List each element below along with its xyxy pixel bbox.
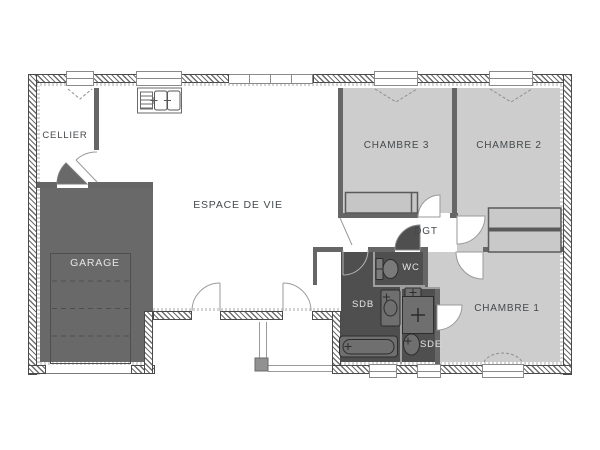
- floor-plan: CELLIER GARAGE ESPACE DE VIE CHAMBRE 3 C…: [0, 0, 600, 450]
- entry-door-left-icon: [192, 283, 220, 311]
- window-cellier: [66, 71, 94, 86]
- closet-chambre3-icon: [346, 193, 418, 214]
- room-label-sdb: SDB: [347, 299, 379, 310]
- porch-post: [255, 358, 268, 371]
- room-label-cellier: CELLIER: [30, 130, 100, 141]
- room-label-wc: WC: [398, 262, 424, 273]
- closet-chambre2-icon: [489, 208, 562, 252]
- entry-door-right-icon: [283, 283, 311, 311]
- kitchen-sink-icon: [138, 88, 182, 113]
- chambre3-door-icon: [418, 195, 440, 217]
- room-label-chambre2: CHAMBRE 2: [456, 140, 562, 151]
- living-dgt-door-leaf: [340, 218, 352, 245]
- room-label-espace-de-vie: ESPACE DE VIE: [158, 199, 318, 211]
- window-sde: [417, 364, 441, 378]
- plan-details: [0, 0, 600, 450]
- room-label-garage: GARAGE: [45, 257, 145, 269]
- window-chambre3: [374, 71, 418, 86]
- sdb-door-icon: [343, 250, 368, 275]
- toilet-icon: [376, 259, 399, 280]
- vanity-sink-icon: [381, 290, 400, 326]
- bay-window-living: [229, 74, 313, 84]
- room-label-chambre1: CHAMBRE 1: [447, 303, 567, 314]
- room-label-sde: SDE: [415, 339, 447, 350]
- window-chambre1: [482, 364, 524, 378]
- chambre1-door-icon: [456, 252, 483, 279]
- window-chambre2: [489, 71, 533, 86]
- shower-icon: [403, 297, 434, 334]
- window-kitchen: [136, 71, 182, 86]
- bathtub-icon: [340, 336, 398, 357]
- room-label-dgt: DGT: [400, 226, 452, 237]
- porch-lines: [260, 322, 333, 372]
- chambre2-door-icon: [457, 216, 485, 244]
- garage-door-icon: [46, 254, 131, 374]
- room-label-chambre3: CHAMBRE 3: [343, 140, 450, 151]
- washbasin-icon: [405, 288, 421, 297]
- window-sdb: [369, 364, 397, 378]
